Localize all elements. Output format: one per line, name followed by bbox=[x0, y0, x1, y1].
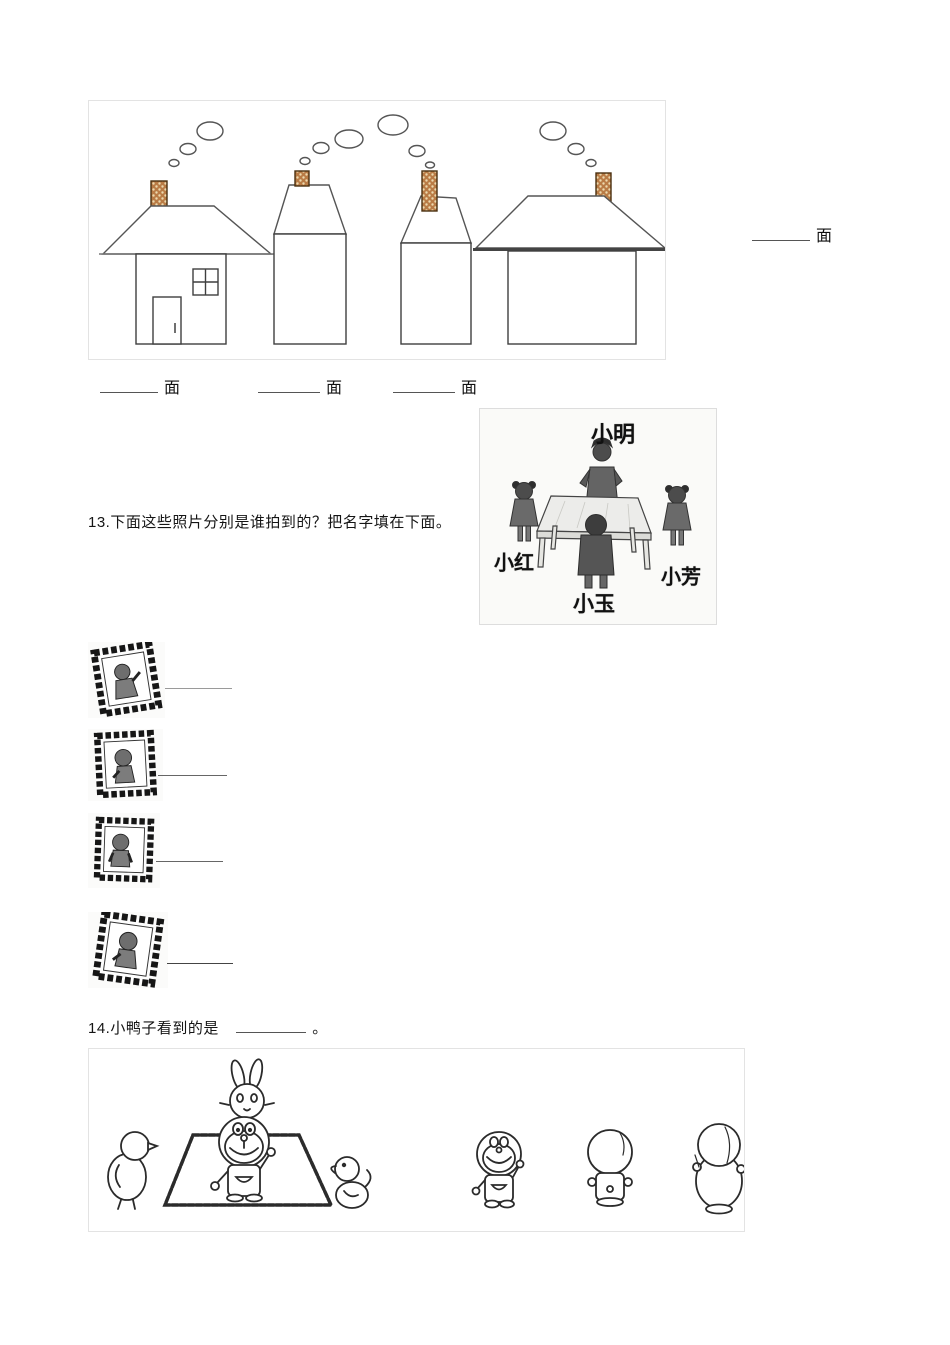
answer-line bbox=[100, 391, 158, 393]
worksheet-page: 面 面 面 面 13.下面这些照片分别是谁拍到的？把名字填在下面。 bbox=[0, 0, 950, 1345]
option-a-front-view-icon bbox=[473, 1132, 524, 1208]
option-c-top-back-view-icon bbox=[693, 1124, 744, 1214]
photo-2 bbox=[88, 729, 163, 801]
scene-name-right: 小芳 bbox=[661, 561, 701, 590]
smoke-bubbles-icon bbox=[540, 122, 596, 167]
blank-unit-label: 面 bbox=[461, 380, 477, 397]
smoke-arc-icon bbox=[300, 115, 435, 168]
blank-unit-label: 面 bbox=[326, 380, 342, 397]
kid-left-figure bbox=[510, 482, 538, 542]
option-b-back-view-icon bbox=[588, 1130, 632, 1206]
blank-unit-label: 面 bbox=[164, 380, 180, 397]
smoke-bubbles-icon bbox=[169, 122, 223, 167]
rabbit-icon bbox=[220, 1058, 274, 1118]
question14-fullstop: 。 bbox=[312, 1020, 328, 1037]
blank-unit-label: 面 bbox=[816, 228, 832, 245]
answer-blank-3: 面 bbox=[393, 374, 477, 398]
house-3-icon bbox=[401, 171, 471, 344]
photo-1-answer-line bbox=[165, 687, 232, 689]
photo-2-answer-line bbox=[158, 774, 227, 776]
question14-prefix: 14.小鸭子看到的是 bbox=[88, 1020, 219, 1037]
answer-blank-side: 面 bbox=[752, 222, 832, 246]
house-1-icon bbox=[99, 122, 275, 344]
question14-text: 14.小鸭子看到的是 。 bbox=[88, 1017, 328, 1038]
doraemon-front-icon bbox=[211, 1117, 275, 1202]
question14-answer-line bbox=[236, 1031, 306, 1033]
question13-text: 13.下面这些照片分别是谁拍到的？把名字填在下面。 bbox=[88, 511, 451, 532]
framed-photo-icon bbox=[88, 912, 168, 988]
scene-name-bottom: 小玉 bbox=[573, 588, 615, 618]
question14-scene-image bbox=[88, 1048, 745, 1232]
answer-line bbox=[393, 391, 455, 393]
house-2-icon bbox=[274, 171, 346, 344]
scene-name-left: 小红 bbox=[494, 547, 534, 576]
answer-blank-2: 面 bbox=[258, 374, 342, 398]
duck-view-scene-drawing bbox=[89, 1049, 744, 1231]
duck-icon bbox=[331, 1157, 370, 1208]
photo-4-answer-line bbox=[167, 962, 233, 964]
photo-4 bbox=[88, 912, 168, 988]
houses-drawing bbox=[89, 101, 665, 359]
kid-right-figure bbox=[663, 486, 691, 546]
house-4-icon bbox=[473, 122, 665, 344]
photo-1 bbox=[88, 642, 165, 718]
scene-name-top: 小明 bbox=[591, 417, 635, 449]
question13-scene-image: 小明 小红 小芳 小玉 bbox=[479, 408, 717, 625]
chick-icon bbox=[108, 1132, 157, 1209]
framed-photo-icon bbox=[88, 813, 160, 888]
framed-photo-icon bbox=[88, 729, 163, 801]
answer-line bbox=[752, 239, 810, 241]
answer-line bbox=[258, 391, 320, 393]
photo-3 bbox=[88, 813, 160, 888]
framed-photo-icon bbox=[88, 642, 165, 718]
question12-houses-image bbox=[88, 100, 666, 360]
answer-blank-1: 面 bbox=[100, 374, 180, 398]
photo-3-answer-line bbox=[156, 860, 223, 862]
